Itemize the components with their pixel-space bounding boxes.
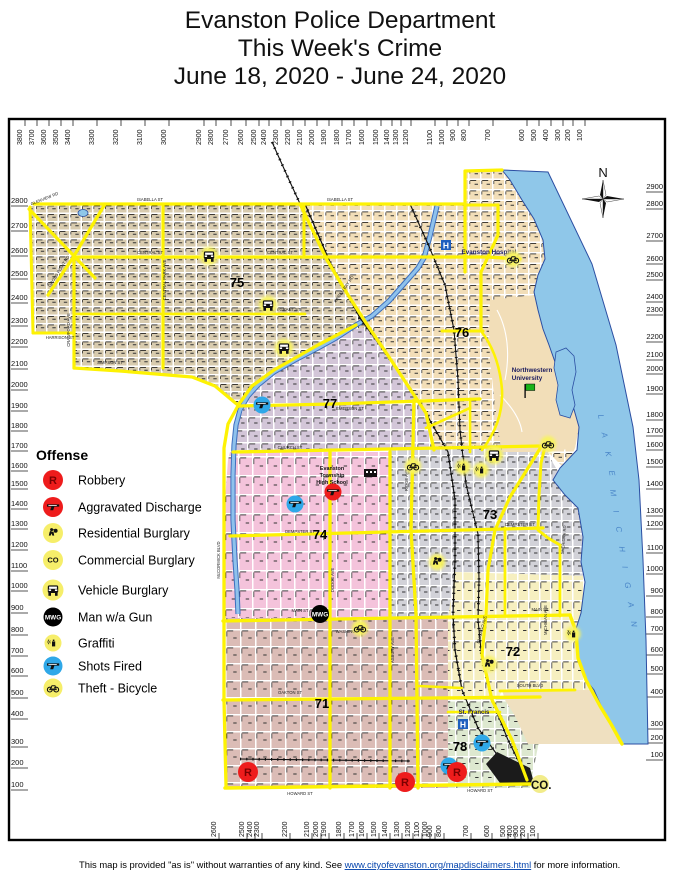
- svg-text:Evanston Police Department: Evanston Police Department: [185, 7, 496, 34]
- svg-text:1700: 1700: [346, 129, 353, 145]
- svg-text:72: 72: [506, 644, 520, 659]
- svg-text:300: 300: [513, 825, 520, 837]
- svg-text:Northwestern: Northwestern: [512, 367, 553, 374]
- svg-text:2800: 2800: [11, 196, 28, 205]
- svg-text:SIMPSON ST: SIMPSON ST: [97, 360, 123, 365]
- svg-text:Township: Township: [320, 473, 345, 479]
- svg-text:1000: 1000: [439, 129, 446, 145]
- svg-text:ISABELLA ST: ISABELLA ST: [137, 197, 164, 202]
- svg-text:78: 78: [453, 739, 467, 754]
- svg-text:1700: 1700: [349, 821, 356, 837]
- svg-text:3300: 3300: [89, 129, 96, 145]
- svg-text:1400: 1400: [646, 479, 663, 488]
- svg-text:900: 900: [427, 825, 434, 837]
- svg-text:75: 75: [230, 275, 244, 290]
- svg-text:St. Francis: St. Francis: [459, 710, 490, 716]
- svg-text:2500: 2500: [239, 821, 246, 837]
- svg-text:June 18, 2020 - June 24, 2020: June 18, 2020 - June 24, 2020: [174, 63, 506, 90]
- svg-text:800: 800: [11, 625, 24, 634]
- svg-text:2100: 2100: [297, 129, 304, 145]
- svg-text:3600: 3600: [41, 129, 48, 145]
- svg-text:800: 800: [650, 607, 663, 616]
- svg-text:3700: 3700: [29, 129, 36, 145]
- svg-text:MICHIGAN AVE: MICHIGAN AVE: [543, 605, 548, 635]
- svg-text:1600: 1600: [646, 440, 663, 449]
- svg-text:2200: 2200: [285, 129, 292, 145]
- svg-text:2300: 2300: [254, 821, 261, 837]
- svg-text:2200: 2200: [11, 337, 28, 346]
- svg-text:1700: 1700: [646, 426, 663, 435]
- svg-text:CENTRAL ST: CENTRAL ST: [137, 250, 163, 255]
- svg-text:700: 700: [463, 825, 470, 837]
- svg-text:1900: 1900: [11, 401, 28, 410]
- svg-text:2500: 2500: [251, 129, 258, 145]
- svg-text:300: 300: [555, 129, 562, 141]
- svg-text:77: 77: [323, 396, 337, 411]
- svg-text:CENTRAL ST: CENTRAL ST: [267, 250, 293, 255]
- svg-text:DEMPSTER ST: DEMPSTER ST: [505, 522, 535, 527]
- svg-text:1100: 1100: [414, 822, 421, 837]
- svg-text:2600: 2600: [211, 821, 218, 837]
- svg-text:Offense: Offense: [36, 447, 88, 463]
- svg-text:600: 600: [484, 825, 491, 837]
- svg-text:DEMPSTER ST: DEMPSTER ST: [285, 529, 315, 534]
- svg-text:2700: 2700: [11, 221, 28, 230]
- svg-text:3200: 3200: [113, 129, 120, 145]
- svg-text:1100: 1100: [647, 543, 663, 552]
- svg-text:1400: 1400: [384, 129, 391, 145]
- svg-text:2800: 2800: [208, 129, 215, 145]
- svg-text:2200: 2200: [646, 332, 663, 341]
- svg-text:Vehicle Burglary: Vehicle Burglary: [78, 584, 169, 598]
- svg-text:1900: 1900: [321, 821, 328, 837]
- svg-text:1800: 1800: [646, 410, 663, 419]
- svg-text:H: H: [460, 720, 466, 730]
- svg-text:CRAWFORD AVE: CRAWFORD AVE: [66, 313, 71, 347]
- svg-text:2700: 2700: [646, 231, 663, 240]
- svg-text:500: 500: [531, 129, 538, 141]
- svg-text:100: 100: [650, 750, 663, 759]
- svg-text:Man w/a Gun: Man w/a Gun: [78, 611, 152, 625]
- svg-text:2300: 2300: [646, 305, 663, 314]
- svg-text:2600: 2600: [646, 254, 663, 263]
- svg-text:2100: 2100: [646, 350, 663, 359]
- svg-text:1400: 1400: [11, 499, 28, 508]
- svg-text:2100: 2100: [11, 359, 28, 368]
- svg-text:1700: 1700: [11, 441, 28, 450]
- svg-text:R: R: [401, 777, 409, 789]
- svg-text:OAKTON ST: OAKTON ST: [278, 690, 303, 695]
- svg-text:1800: 1800: [11, 421, 28, 430]
- svg-text:2600: 2600: [238, 129, 245, 145]
- svg-text:1300: 1300: [394, 821, 401, 837]
- svg-text:2300: 2300: [11, 316, 28, 325]
- svg-text:2000: 2000: [11, 380, 28, 389]
- svg-text:100: 100: [530, 825, 537, 837]
- svg-text:2700: 2700: [223, 129, 230, 145]
- svg-text:1600: 1600: [11, 461, 28, 470]
- svg-text:2000: 2000: [309, 129, 316, 145]
- svg-text:1200: 1200: [405, 821, 412, 837]
- svg-text:700: 700: [485, 129, 492, 141]
- svg-text:Shots Fired: Shots Fired: [78, 660, 142, 674]
- svg-text:1300: 1300: [11, 519, 28, 528]
- svg-text:HOWARD ST: HOWARD ST: [287, 791, 313, 796]
- svg-text:Robbery: Robbery: [78, 474, 126, 488]
- svg-text:800: 800: [461, 129, 468, 141]
- svg-text:800: 800: [436, 825, 443, 837]
- svg-text:3500: 3500: [53, 129, 60, 145]
- svg-text:Aggravated Discharge: Aggravated Discharge: [78, 501, 202, 515]
- svg-text:1200: 1200: [403, 129, 410, 145]
- svg-text:CO: CO: [47, 556, 58, 565]
- svg-text:H: H: [443, 241, 449, 251]
- svg-text:200: 200: [650, 733, 663, 742]
- svg-text:73: 73: [483, 507, 497, 522]
- svg-text:1600: 1600: [359, 821, 366, 837]
- svg-text:300: 300: [11, 737, 24, 746]
- svg-text:900: 900: [450, 129, 457, 141]
- svg-text:1500: 1500: [646, 457, 663, 466]
- svg-text:400: 400: [11, 709, 24, 718]
- svg-text:2400: 2400: [261, 129, 268, 145]
- svg-text:2000: 2000: [646, 364, 663, 373]
- svg-text:200: 200: [520, 825, 527, 837]
- svg-text:R: R: [244, 767, 252, 779]
- svg-text:300: 300: [650, 719, 663, 728]
- svg-text:74: 74: [313, 527, 328, 542]
- svg-text:University: University: [512, 375, 543, 382]
- svg-text:400: 400: [543, 129, 550, 141]
- svg-text:McCORMICK BLVD: McCORMICK BLVD: [216, 541, 221, 578]
- svg-text:This map is provided "as is" w: This map is provided "as is" without war…: [79, 859, 620, 870]
- svg-text:1400: 1400: [382, 821, 389, 837]
- svg-text:200: 200: [11, 758, 24, 767]
- svg-text:3000: 3000: [161, 129, 168, 145]
- svg-text:2800: 2800: [646, 199, 663, 208]
- svg-text:Residential Burglary: Residential Burglary: [78, 527, 191, 541]
- svg-text:2900: 2900: [196, 129, 203, 145]
- svg-text:1900: 1900: [321, 129, 328, 145]
- svg-text:2400: 2400: [11, 293, 28, 302]
- svg-text:100: 100: [11, 780, 24, 789]
- svg-text:2400: 2400: [247, 821, 254, 837]
- svg-text:Graffiti: Graffiti: [78, 637, 115, 651]
- svg-text:This Week's Crime: This Week's Crime: [238, 35, 442, 62]
- svg-text:1300: 1300: [393, 129, 400, 145]
- svg-text:2300: 2300: [273, 129, 280, 145]
- svg-text:CHURCH ST: CHURCH ST: [278, 445, 303, 450]
- svg-text:2400: 2400: [646, 292, 663, 301]
- svg-text:1600: 1600: [359, 129, 366, 145]
- svg-text:76: 76: [455, 325, 469, 340]
- svg-text:600: 600: [650, 645, 663, 654]
- svg-text:500: 500: [650, 664, 663, 673]
- svg-text:EMERSON ST: EMERSON ST: [336, 406, 364, 411]
- svg-text:MWG: MWG: [312, 611, 328, 618]
- svg-text:500: 500: [11, 688, 24, 697]
- svg-text:400: 400: [650, 687, 663, 696]
- svg-text:ASBURY AVE: ASBURY AVE: [390, 637, 395, 663]
- svg-text:Evanston: Evanston: [320, 466, 344, 472]
- svg-text:1100: 1100: [11, 561, 27, 570]
- svg-text:1500: 1500: [371, 821, 378, 837]
- svg-text:1800: 1800: [336, 821, 343, 837]
- svg-text:Theft - Bicycle: Theft - Bicycle: [78, 682, 157, 696]
- svg-text:1500: 1500: [373, 129, 380, 145]
- svg-text:1100: 1100: [427, 130, 434, 145]
- svg-text:2200: 2200: [282, 821, 289, 837]
- svg-text:R: R: [453, 767, 461, 779]
- svg-text:CENTRAL PARK AVE: CENTRAL PARK AVE: [162, 259, 167, 300]
- svg-text:2500: 2500: [646, 270, 663, 279]
- svg-text:ISABELLA ST: ISABELLA ST: [327, 197, 354, 202]
- svg-text:2500: 2500: [11, 269, 28, 278]
- svg-text:700: 700: [650, 624, 663, 633]
- svg-text:2900: 2900: [646, 182, 663, 191]
- svg-text:1000: 1000: [11, 581, 28, 590]
- svg-text:2100: 2100: [304, 821, 311, 837]
- svg-text:3400: 3400: [65, 129, 72, 145]
- svg-text:3800: 3800: [17, 129, 24, 145]
- svg-text:2000: 2000: [313, 821, 320, 837]
- svg-text:SOUTH BLVD: SOUTH BLVD: [517, 683, 543, 688]
- svg-text:700: 700: [11, 646, 24, 655]
- svg-text:N: N: [598, 165, 607, 180]
- svg-text:200: 200: [565, 129, 572, 141]
- svg-text:1800: 1800: [334, 129, 341, 145]
- svg-text:1000: 1000: [646, 564, 663, 573]
- svg-text:Commercial Burglary: Commercial Burglary: [78, 554, 195, 568]
- svg-text:600: 600: [519, 129, 526, 141]
- svg-text:71: 71: [315, 696, 329, 711]
- svg-text:DODGE AVE: DODGE AVE: [330, 568, 335, 593]
- svg-text:500: 500: [500, 825, 507, 837]
- svg-text:100: 100: [577, 129, 584, 141]
- svg-text:R: R: [49, 475, 57, 487]
- svg-text:GRANT ST: GRANT ST: [279, 307, 301, 312]
- svg-text:MAIN ST: MAIN ST: [292, 608, 309, 613]
- svg-text:HOWARD ST: HOWARD ST: [467, 788, 493, 793]
- svg-text:1200: 1200: [11, 540, 28, 549]
- svg-text:900: 900: [11, 603, 24, 612]
- svg-text:1200: 1200: [646, 519, 663, 528]
- svg-text:MWG: MWG: [45, 614, 61, 621]
- svg-text:CO.: CO.: [531, 780, 551, 792]
- svg-text:1900: 1900: [646, 384, 663, 393]
- svg-text:600: 600: [11, 666, 24, 675]
- svg-text:3100: 3100: [137, 129, 144, 145]
- svg-text:900: 900: [650, 586, 663, 595]
- svg-text:2600: 2600: [11, 246, 28, 255]
- svg-text:1300: 1300: [646, 506, 663, 515]
- svg-text:1500: 1500: [11, 479, 28, 488]
